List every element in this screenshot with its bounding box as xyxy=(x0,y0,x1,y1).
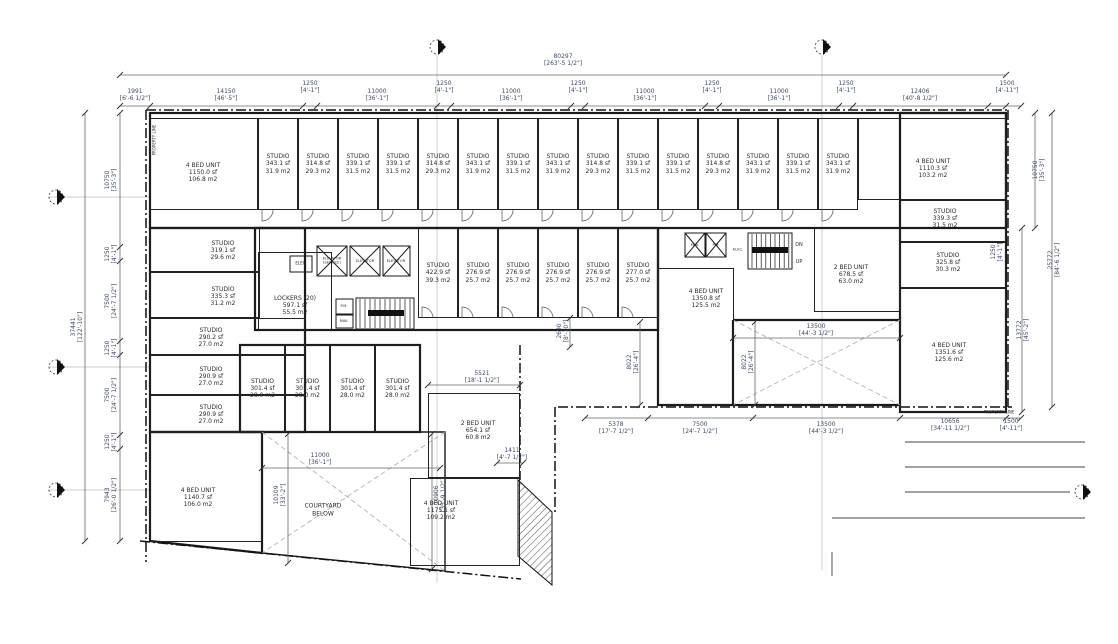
outer-walls xyxy=(150,113,1006,553)
section-marker-flag-icon xyxy=(1083,484,1091,500)
dimension-lines xyxy=(85,75,1052,569)
section-marker-flag-icon xyxy=(438,39,446,55)
section-marker-flag-icon xyxy=(823,39,831,55)
stair-handrail xyxy=(368,310,404,316)
floor-plan-canvas: 4 BED UNIT1150.0 sf106.8 m2STUDIO343.1 s… xyxy=(0,0,1118,644)
floor-plan-linework xyxy=(0,0,1118,644)
stair-handrail xyxy=(752,247,788,253)
hatched-setback xyxy=(518,480,552,585)
note-lines xyxy=(832,442,1085,576)
section-marker-flag-icon xyxy=(57,359,65,375)
open-to-below-x xyxy=(262,320,900,571)
section-markers xyxy=(49,39,1091,500)
stair-treads xyxy=(360,234,789,328)
section-cut-lines xyxy=(48,55,822,583)
door-swings xyxy=(262,210,833,318)
section-marker-flag-icon xyxy=(57,482,65,498)
section-marker-flag-icon xyxy=(57,189,65,205)
dimension-ticks xyxy=(82,72,1055,572)
